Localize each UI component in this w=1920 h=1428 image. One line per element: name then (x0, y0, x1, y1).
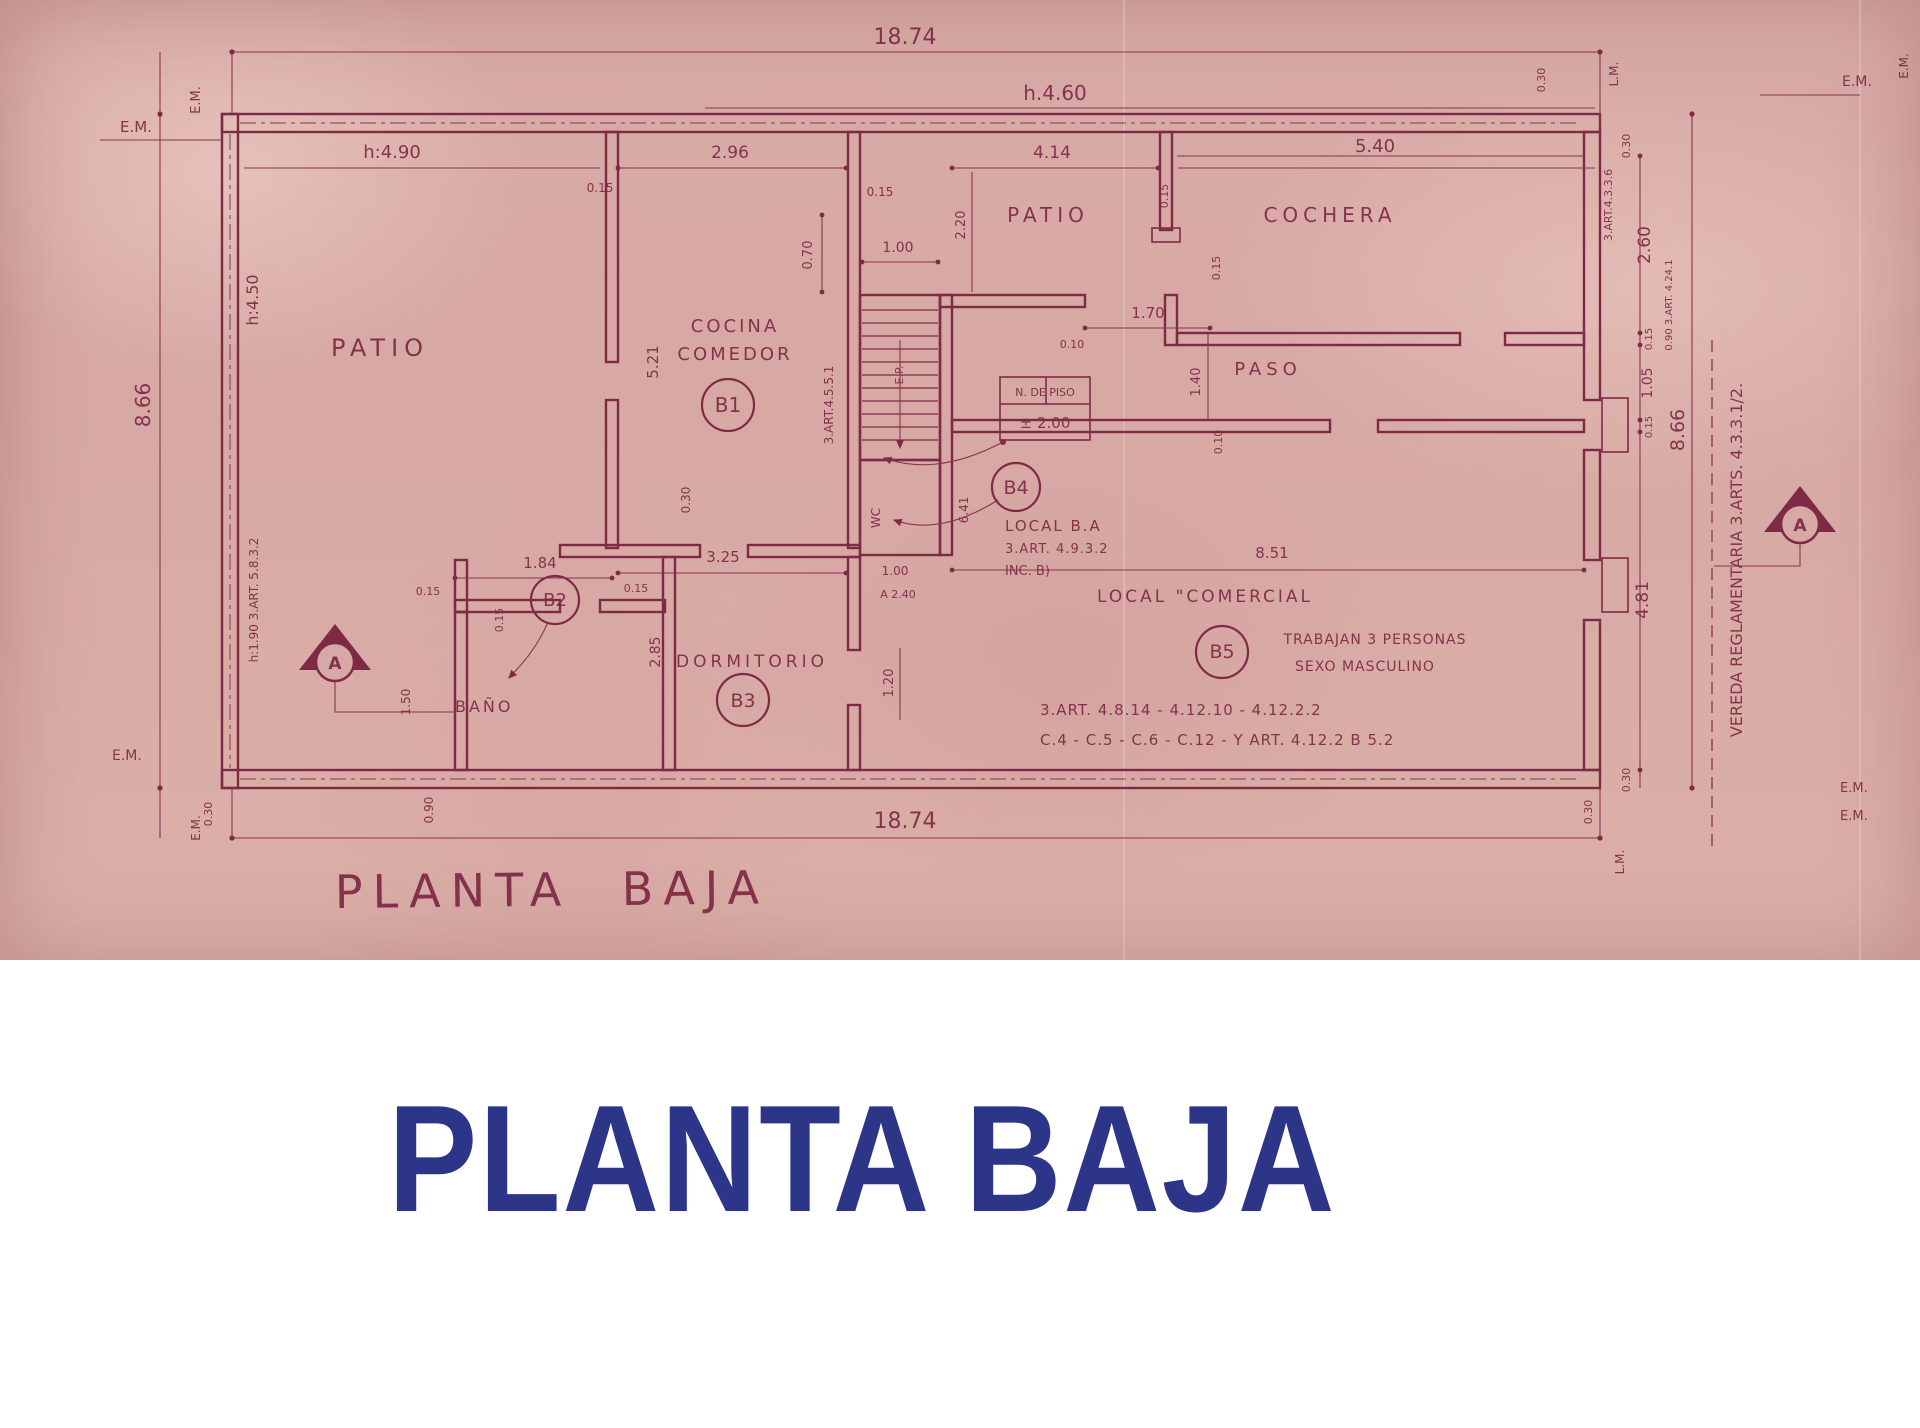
marker-em: E.M. (120, 118, 152, 136)
dim-641: 6.41 (957, 497, 971, 524)
room-cocina-2: COMEDOR (677, 344, 792, 365)
dim-851: 8.51 (1255, 544, 1288, 562)
marker-em: E.M. (1840, 781, 1868, 796)
dim-h460: h.4.60 (1023, 81, 1087, 105)
section-marker-left: A (299, 624, 456, 712)
dim-total-width-top: 18.74 (874, 25, 937, 50)
dim-015: 0.15 (587, 181, 614, 195)
room-cochera: COCHERA (1263, 203, 1396, 227)
page-title: PLANTA BAJA (388, 1072, 1336, 1247)
note-wc: WC (869, 508, 883, 528)
section-letter: A (328, 654, 342, 674)
dimension-lines (100, 49, 1860, 840)
note-local-ba-1: LOCAL B.A (1005, 517, 1102, 535)
dim-184: 1.84 (523, 554, 556, 572)
floor-plan-drawing: A A 18.74 h.4.60 h:4.90 2.96 0.15 4.14 0… (0, 0, 1920, 960)
note-arts-1: 3.ART. 4.8.14 - 4.12.10 - 4.12.2.2 (1040, 701, 1322, 719)
dim-285: 2.85 (648, 636, 664, 667)
dim-015: 0.15 (416, 585, 441, 598)
dim-015: 0.15 (1644, 416, 1655, 438)
dim-540: 5.40 (1355, 136, 1395, 157)
section-letter: A (1793, 516, 1807, 536)
room-paso: PASO (1234, 359, 1302, 380)
dim-h490: h:4.90 (363, 142, 421, 163)
note-nivel-1: N. DE PISO (1015, 386, 1075, 399)
dim-325: 3.25 (706, 548, 739, 566)
note-trabajan: TRABAJAN 3 PERSONAS (1282, 632, 1466, 648)
dim-090: 0.90 (422, 797, 436, 824)
dim-100: 1.00 (882, 240, 913, 256)
dim-030: 0.30 (1620, 768, 1633, 793)
unit-b2: B2 (543, 590, 567, 611)
marker-em: E.M. (1840, 809, 1868, 824)
dim-866-right: 8.66 (1667, 409, 1689, 451)
marker-em: E.M. (189, 815, 203, 841)
unit-b3: B3 (730, 690, 755, 712)
note-local-ba-2: 3.ART. 4.9.3.2 (1005, 542, 1109, 557)
note-h190-art: h:1.90 3.ART. 5.8.3.2 (247, 538, 261, 663)
room-bano: BAÑO (455, 697, 513, 716)
dim-140: 1.40 (1189, 368, 1204, 397)
exterior-walls (222, 114, 1628, 788)
dim-015: 0.15 (493, 608, 506, 633)
dim-total-width-bottom: 18.74 (874, 809, 937, 834)
dim-521: 5.21 (644, 345, 662, 378)
screenshot-root: A A 18.74 h.4.60 h:4.90 2.96 0.15 4.14 0… (0, 0, 1920, 1428)
dim-170: 1.70 (1131, 304, 1164, 322)
dim-010: 0.10 (1060, 338, 1085, 351)
dim-150: 1.50 (399, 689, 413, 716)
note-vereda: VEREDA REGLAMENTARIA 3.ARTS. 4.3.3.1/2. (1727, 383, 1746, 737)
leader-arrows (509, 439, 1006, 678)
dim-a240: A 2.40 (880, 588, 916, 601)
room-cocina-1: COCINA (691, 316, 779, 337)
marker-lm: L.M. (1607, 62, 1621, 87)
marker-em: E.M. (1897, 53, 1911, 79)
note-h450: h:4.50 (243, 274, 262, 325)
note-ep: E.P. (893, 366, 906, 385)
room-patio-center: PATIO (1007, 203, 1089, 227)
unit-b1: B1 (715, 393, 741, 417)
dim-010: 0.10 (1212, 430, 1225, 455)
dim-015: 0.15 (1644, 328, 1655, 350)
room-dormitorio: DORMITORIO (676, 652, 828, 672)
marker-em: E.M. (189, 86, 204, 114)
dim-481: 4.81 (1633, 581, 1653, 619)
dim-030: 0.30 (679, 487, 693, 514)
note-nivel-2: ± 2.00 (1020, 414, 1071, 432)
dim-015: 0.15 (624, 582, 649, 595)
wc-room (860, 460, 940, 555)
dim-030: 0.30 (1620, 134, 1633, 159)
dim-070: 0.70 (801, 241, 816, 270)
dim-220: 2.20 (954, 211, 969, 240)
marker-lm: L.M. (1613, 850, 1627, 875)
note-local-comercial: LOCAL "COMERCIAL (1097, 587, 1313, 607)
note-stair-art: 3.ART.4.5.5.1 (822, 366, 836, 445)
dim-015: 0.15 (1158, 184, 1171, 209)
note-sexo: SEXO MASCULINO (1295, 659, 1435, 675)
plan-title-handwritten: PLANTA BAJA (335, 860, 770, 919)
dim-296: 2.96 (711, 143, 749, 163)
note-art4241: 0.90 3.ART. 4.24.1 (1664, 259, 1675, 350)
dim-120: 1.20 (882, 669, 897, 698)
note-art4336: 3.ART.4.3.3.6 (1602, 169, 1615, 241)
dim-015: 0.15 (1210, 256, 1223, 281)
unit-b4: B4 (1003, 477, 1028, 499)
dim-866-left: 8.66 (131, 383, 155, 428)
note-local-ba-3: INC. B) (1005, 564, 1050, 579)
dim-030: 0.30 (1535, 68, 1548, 93)
room-patio-left: PATIO (331, 334, 429, 362)
unit-b5: B5 (1209, 641, 1234, 663)
note-arts-2: C.4 - C.5 - C.6 - C.12 - Y ART. 4.12.2 B… (1040, 731, 1394, 749)
dim-015: 0.15 (867, 185, 894, 199)
dim-260: 2.60 (1635, 226, 1655, 264)
dim-105: 1.05 (1640, 367, 1656, 398)
dim-100: 1.00 (882, 564, 909, 578)
dim-030: 0.30 (202, 802, 215, 827)
marker-em: E.M. (1842, 74, 1872, 90)
dim-030: 0.30 (1582, 800, 1595, 825)
marker-em: E.M. (112, 748, 142, 764)
dim-414: 4.14 (1033, 143, 1071, 163)
